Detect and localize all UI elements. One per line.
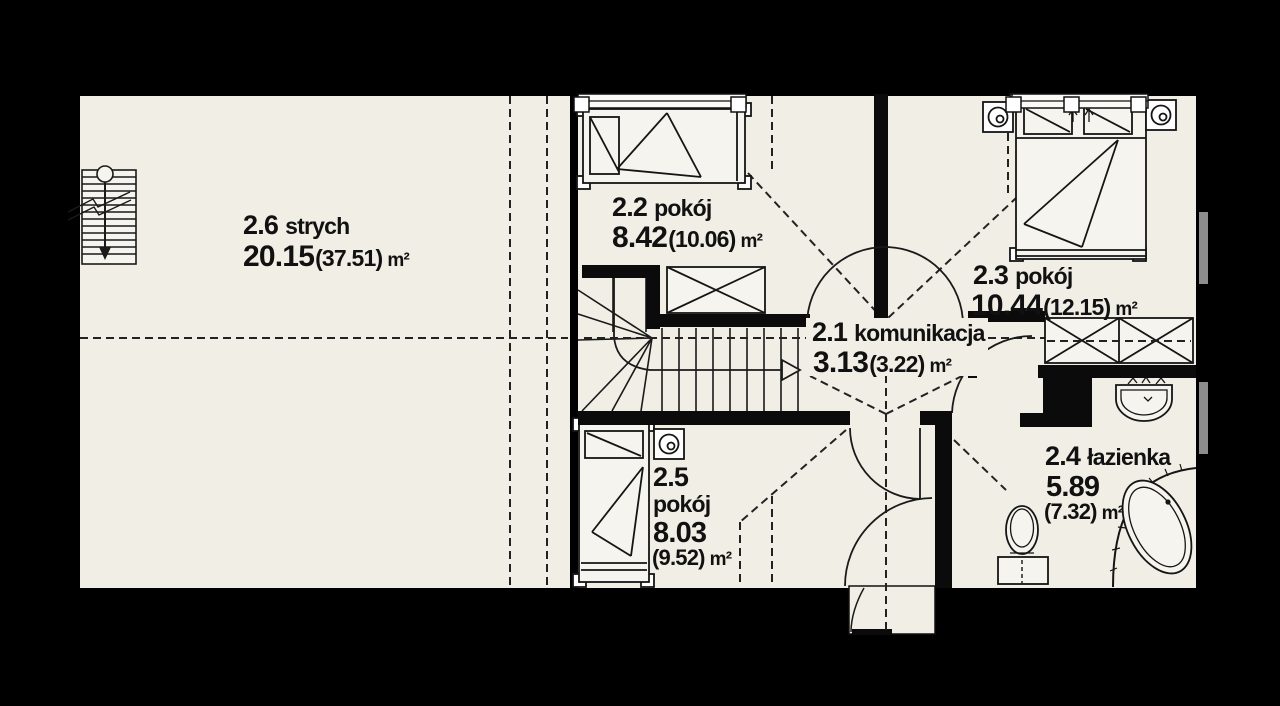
- room-area-alt: (7.32)m²: [1044, 499, 1124, 524]
- attic-floor: [80, 96, 570, 588]
- wall: [578, 411, 850, 425]
- room-id: 2.5: [653, 462, 689, 492]
- roof-window-icon: [1199, 212, 1208, 284]
- double-bed-icon: [1010, 94, 1146, 261]
- wall: [935, 425, 952, 588]
- roof-window-icon: [1199, 382, 1208, 454]
- attic-ladder-icon: [68, 166, 136, 264]
- room-title: 2.1komunikacja: [812, 317, 986, 347]
- wall: [920, 411, 952, 425]
- wall: [1038, 365, 1196, 378]
- floor-plan-page: 2.6strych 20.15(37.51)m² 2.2pokój 8.42(1…: [0, 0, 1280, 706]
- single-bed-icon: [577, 103, 751, 189]
- room-area-alt: (9.52)m²: [652, 545, 732, 570]
- room-title: 2.4łazienka: [1045, 441, 1171, 471]
- single-bed-icon: [573, 418, 654, 587]
- ceiling-lamp-icon: [1146, 100, 1176, 130]
- room-label-komunikacja: 2.1komunikacja 3.13(3.22)m²: [806, 317, 988, 379]
- wall: [874, 94, 888, 318]
- wall: [660, 314, 810, 327]
- wardrobe-icon: [667, 267, 765, 313]
- room-title: 2.6strych: [243, 210, 349, 240]
- wall: [1020, 413, 1045, 427]
- floor-plan-drawing: 2.6strych 20.15(37.51)m² 2.2pokój 8.42(1…: [0, 0, 1280, 706]
- wall: [646, 265, 660, 329]
- room-name: pokój: [653, 491, 710, 517]
- ceiling-lamp-icon: [654, 429, 684, 459]
- chimney-duct: [1043, 378, 1092, 427]
- room-title: 2.3pokój: [973, 260, 1072, 290]
- room-title: 2.2pokój: [612, 192, 711, 222]
